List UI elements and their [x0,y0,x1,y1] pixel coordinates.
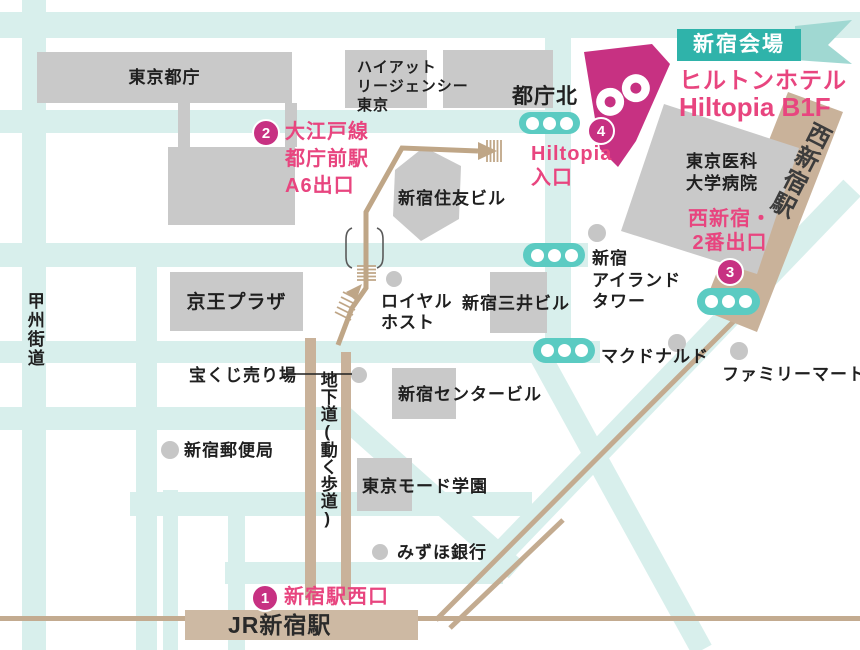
label-post-office: 新宿郵便局 [184,441,274,462]
label-island-tower: 新宿 アイランド タワー [592,248,681,313]
bus-stop-dot [541,344,554,357]
venue-banner: 新宿会場 [677,29,801,61]
marker-2-line2: 都庁前駅 [285,146,369,173]
underground-passage-left [305,338,316,600]
rail-line-horizontal [0,616,860,621]
marker-badge-1: 1 [251,584,279,612]
poi-dot-post-office [161,441,179,459]
label-center-bldg: 新宿センタービル [398,385,542,406]
road-v3 [136,243,157,650]
poi-dot-royal-host [386,271,402,287]
poi-dot-familymart-b [730,342,748,360]
marker-2-line1: 大江戸線 [285,119,369,146]
bus-stop-dot [548,249,561,262]
marker-badge-2: 2 [252,119,280,147]
marker-4-line2: 入口 [531,166,612,190]
bus-stop-icon-island-tower [523,243,585,267]
marker-4-line1: Hiltopia [531,142,612,166]
bus-stop-dot [558,344,571,357]
bus-stop-dot [543,117,556,130]
road-h-mid [0,407,350,430]
label-mizuho: みずほ銀行 [397,543,487,564]
poi-dot-island-tower [588,224,606,242]
label-royal-host: ロイヤル ホスト [381,291,453,333]
marker-1-shinjuku-west-exit: 1 新宿駅西口 [251,584,389,612]
label-takarakuji: 宝くじ売り場 [189,366,297,387]
label-mode-gakuen: 東京モード学園 [362,477,488,498]
bus-stop-dot [531,249,544,262]
road-v4 [163,490,178,650]
label-koshu-kaido: 甲州街道 [23,292,44,368]
label-tochokita-stop: 都庁北 [512,84,578,110]
marker-2-oedo-line-exit: 2 大江戸線 都庁前駅 A6出口 [252,119,369,200]
marker-2-line3: A6出口 [285,173,369,200]
bus-stop-dot [705,295,718,308]
bus-stop-icon-tochokita [519,112,580,134]
label-familymart: ファミリーマート [722,365,860,386]
label-keio-plaza: 京王プラザ [170,291,303,314]
marker-1-label: 新宿駅西口 [284,584,389,610]
poi-dot-takarakuji [351,367,367,383]
building-tocho-stub-a [178,103,190,147]
label-mcdonalds: マクドナルド [601,347,709,368]
label-mitsui: 新宿三井ビル [462,294,570,315]
marker-badge-4: 4 [587,117,615,145]
label-tocho: 東京都庁 [37,68,292,89]
bus-stop-dot [526,117,539,130]
label-sumitomo: 新宿住友ビル [398,189,506,210]
bus-stop-dot [575,344,588,357]
bus-stop-dot [560,117,573,130]
shinjuku-access-map: 新宿会場 ヒルトンホテル Hiltopia B1F 1 新宿駅西口 2 大江戸線… [0,0,860,650]
label-hyatt: ハイアット リージェンシー 東京 [357,58,469,115]
label-hospital: 東京医科 大学病院 [686,151,758,195]
underground-passage-right [341,352,351,600]
road-h4 [0,341,600,363]
venue-banner-tail [795,20,852,64]
poi-dot-mizuho [372,544,388,560]
bus-stop-icon-mcdonalds [533,338,595,363]
bus-stop-dot [565,249,578,262]
marker-4-hiltopia-entrance: Hiltopia 入口 [531,142,612,190]
label-jr-shinjuku-station: JR新宿駅 [228,611,331,639]
road-h6 [225,562,503,584]
label-underground-passage: 地下道(動く歩道) [316,371,337,528]
label-hotel-name: ヒルトンホテル [679,66,847,94]
road-h3 [0,243,588,267]
